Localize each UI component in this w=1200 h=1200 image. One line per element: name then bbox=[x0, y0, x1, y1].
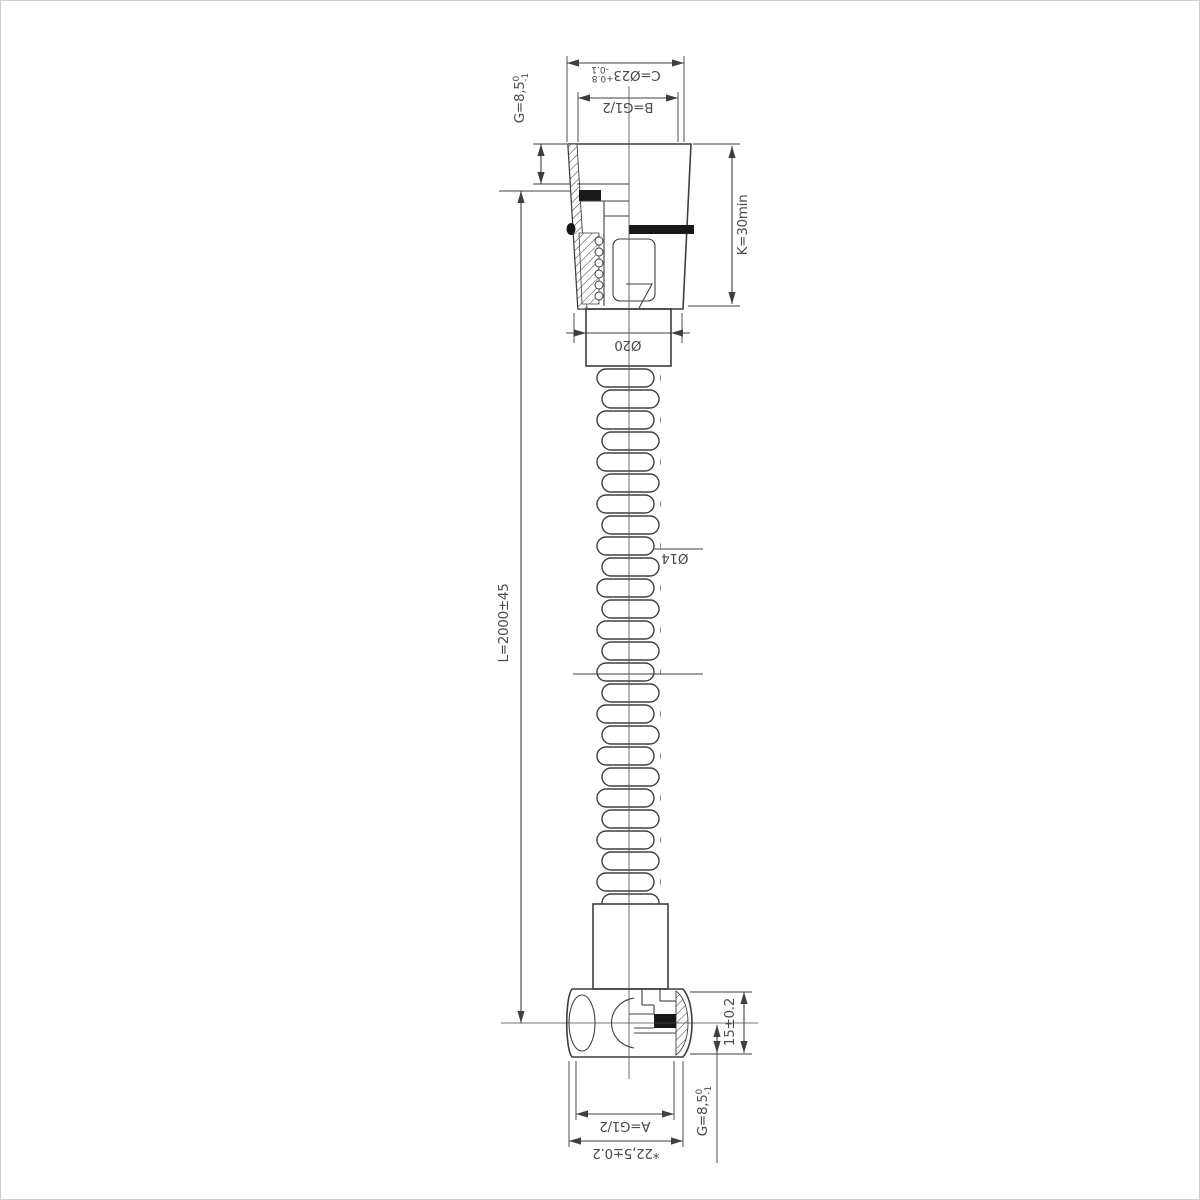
thread-bead bbox=[595, 281, 603, 289]
thread-bead bbox=[595, 248, 603, 256]
top-nut bbox=[567, 144, 695, 309]
seal-ring-right bbox=[629, 225, 694, 234]
washer-section bbox=[579, 190, 601, 201]
thread-bead bbox=[595, 237, 603, 245]
dim-label-d20: Ø20 bbox=[615, 337, 642, 353]
dim-label-a: A=G1/2 bbox=[600, 1118, 651, 1134]
dim-label-w: *22,5±0.2 bbox=[593, 1145, 660, 1161]
dim-label-g-top: G=8,50-1 bbox=[512, 73, 531, 123]
dim-label-d14: Ø14 bbox=[662, 550, 689, 566]
technical-drawing-page: C=Ø23+0.8-0.1 B=G1/2 G=8,50-1 K=30min L=… bbox=[0, 0, 1200, 1200]
thread-bead bbox=[595, 270, 603, 278]
top-nut-notch bbox=[626, 284, 652, 308]
dim-label-l: L=2000±45 bbox=[496, 584, 512, 663]
hose-corrugation bbox=[596, 367, 661, 904]
hose-insert bbox=[613, 239, 655, 301]
hose bbox=[573, 367, 703, 904]
shower-hose-drawing: C=Ø23+0.8-0.1 B=G1/2 G=8,50-1 K=30min L=… bbox=[1, 1, 1199, 1199]
seal-ring-left bbox=[567, 223, 576, 235]
thread-bead bbox=[595, 292, 603, 300]
dim-label-15: 15±0.2 bbox=[722, 998, 738, 1046]
bottom-sleeve bbox=[593, 904, 668, 989]
dim-label-c: C=Ø23+0.8-0.1 bbox=[591, 64, 660, 83]
thread-bead bbox=[595, 259, 603, 267]
dim-label-k: K=30min bbox=[735, 195, 751, 256]
gasket-section bbox=[654, 1014, 676, 1028]
dim-label-g-bottom: G=8,50-1 bbox=[695, 1086, 714, 1136]
dim-label-b: B=G1/2 bbox=[603, 99, 654, 115]
